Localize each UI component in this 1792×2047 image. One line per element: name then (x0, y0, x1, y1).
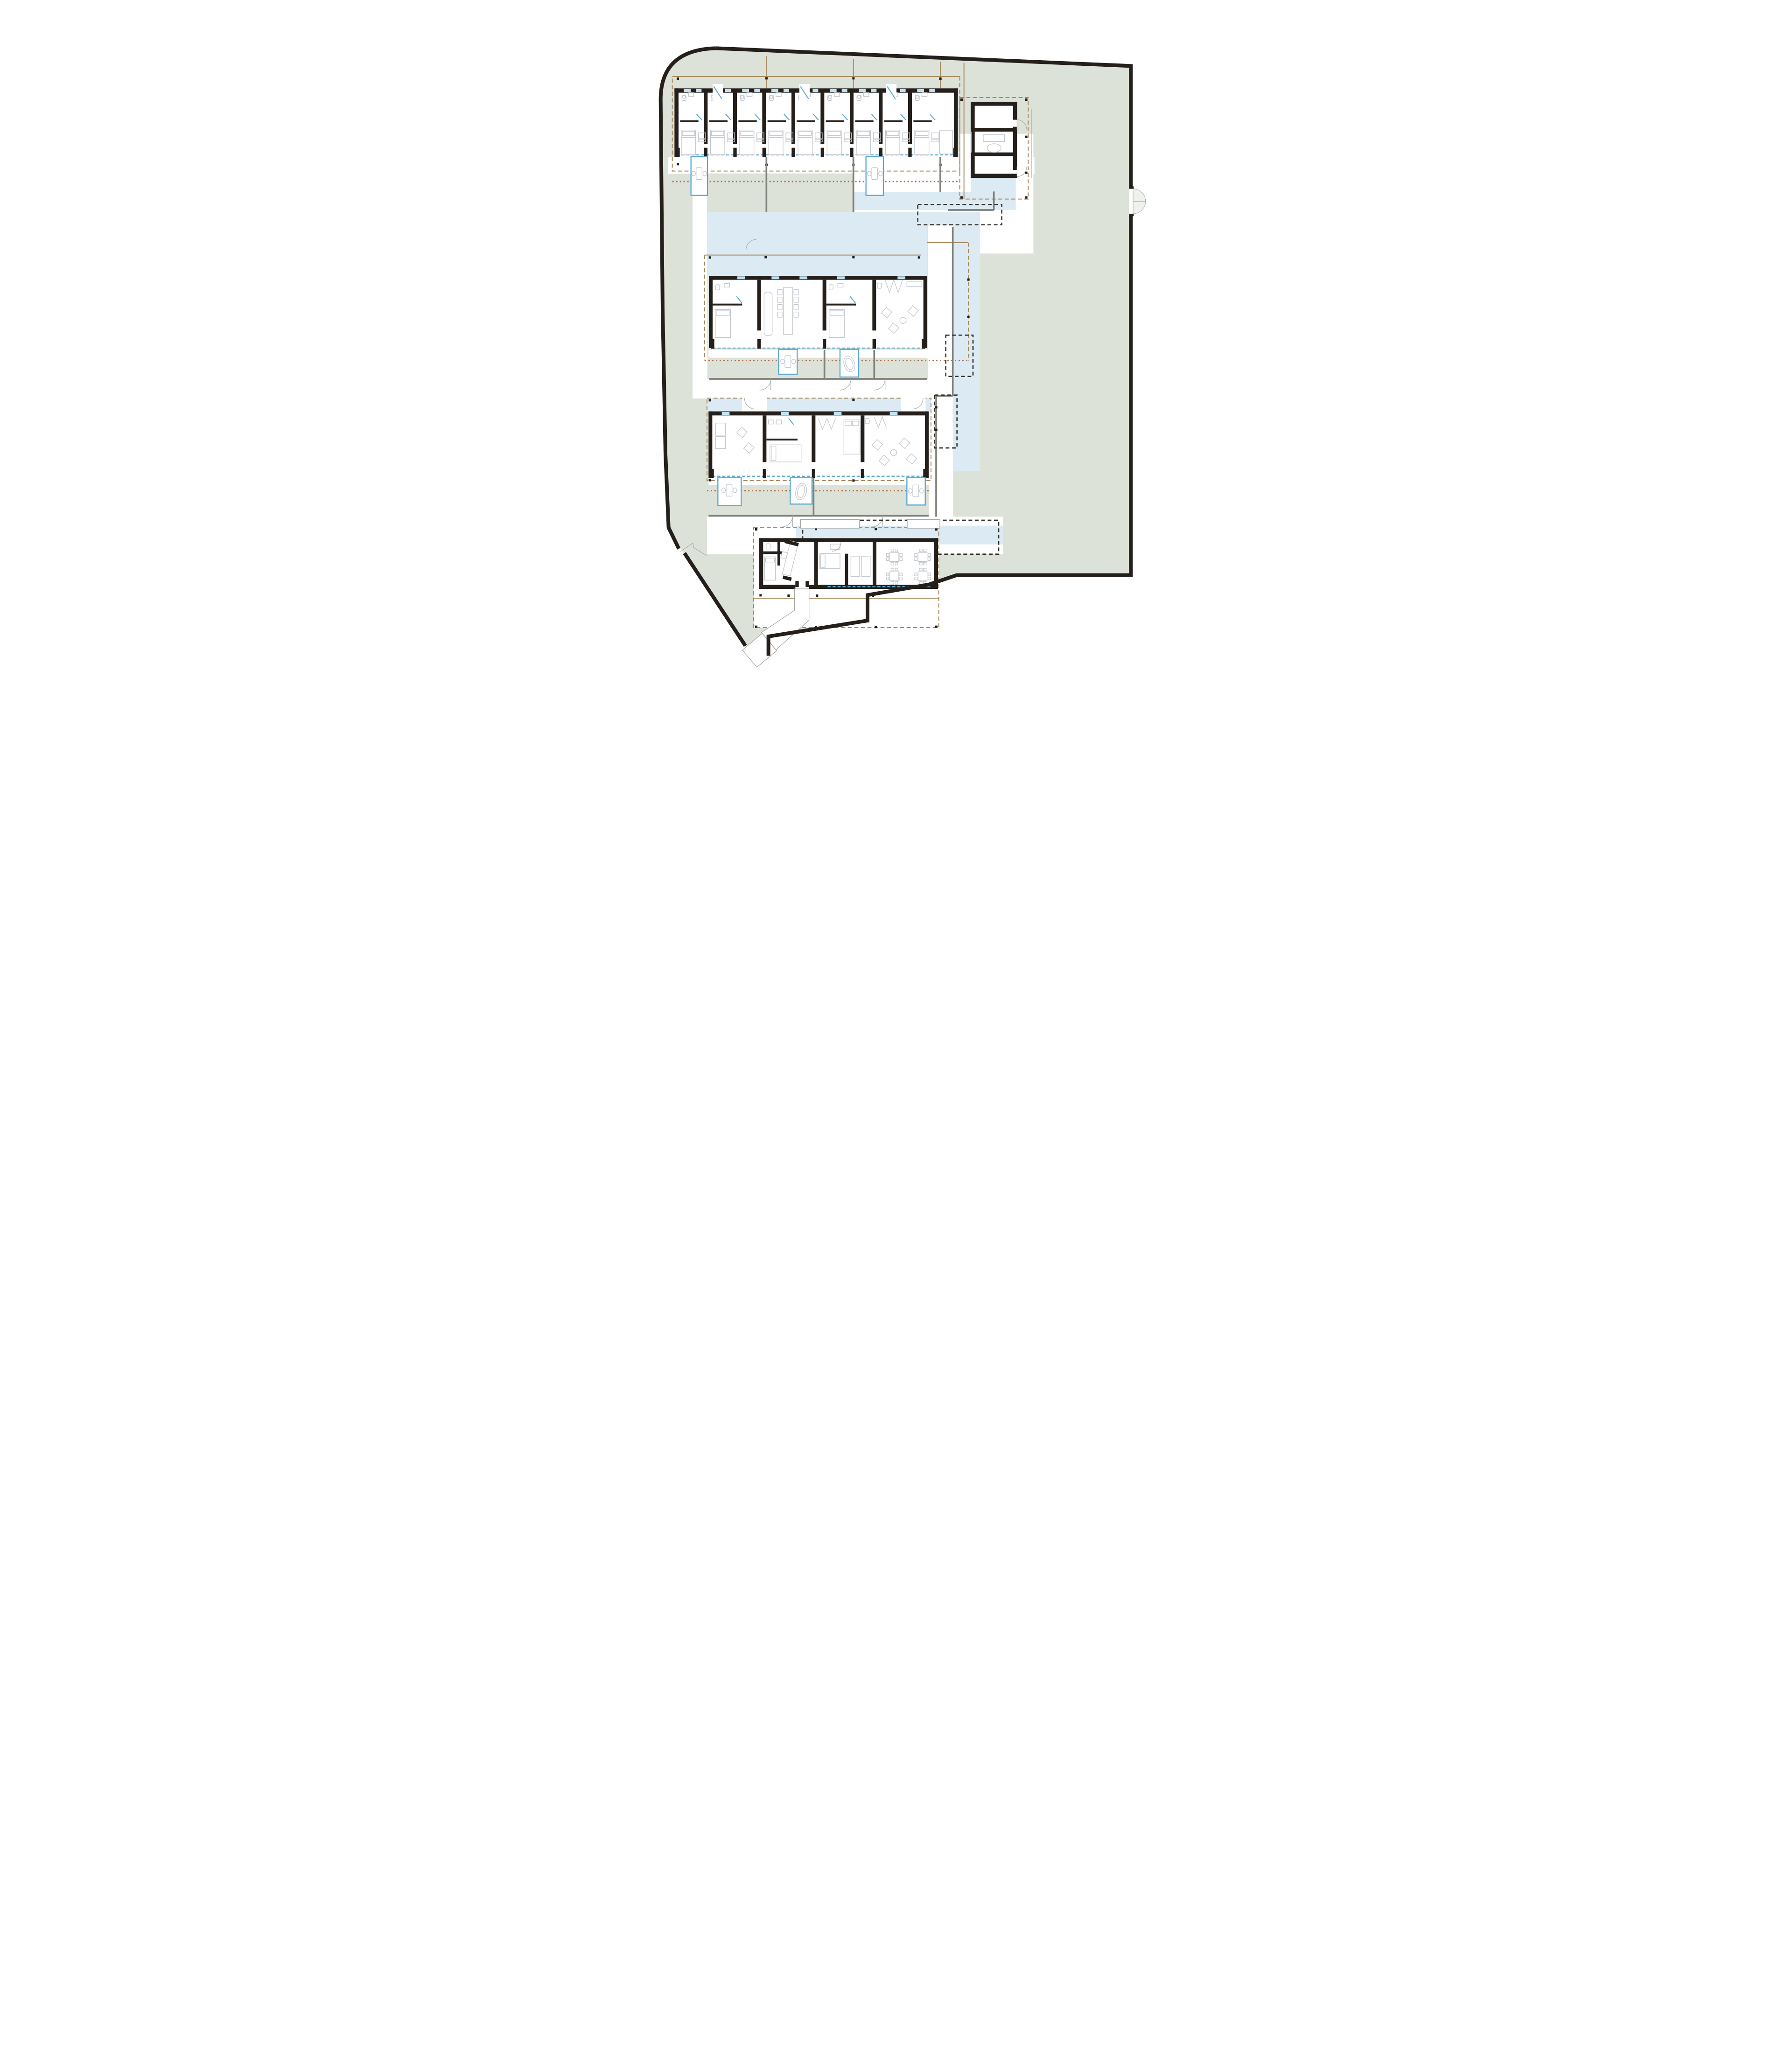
mid-walk-band (693, 379, 960, 398)
annex-sofa (983, 135, 1004, 142)
annex-pool (971, 178, 1016, 193)
south-wing-entry (742, 397, 767, 412)
end-room-sofa (939, 131, 952, 154)
central-terrace-band (708, 349, 928, 358)
entry-canopy (907, 519, 940, 528)
long-sofa (764, 292, 772, 335)
east-path (928, 212, 953, 521)
south-wing-entry (901, 397, 925, 412)
east-water-channel (953, 225, 980, 471)
site-plan-page (597, 0, 1195, 682)
south-terrace (718, 478, 741, 506)
entry-canopy (800, 519, 859, 528)
south-terrace (907, 478, 925, 505)
court-bay (767, 174, 853, 212)
central-court (875, 358, 927, 379)
south-wing-north-channel (707, 398, 931, 411)
central-terrace (778, 349, 797, 374)
dining-long-table (784, 288, 793, 335)
site-plan-drawing (597, 0, 1195, 682)
court-bay (707, 174, 766, 212)
east-gate (1129, 186, 1145, 216)
